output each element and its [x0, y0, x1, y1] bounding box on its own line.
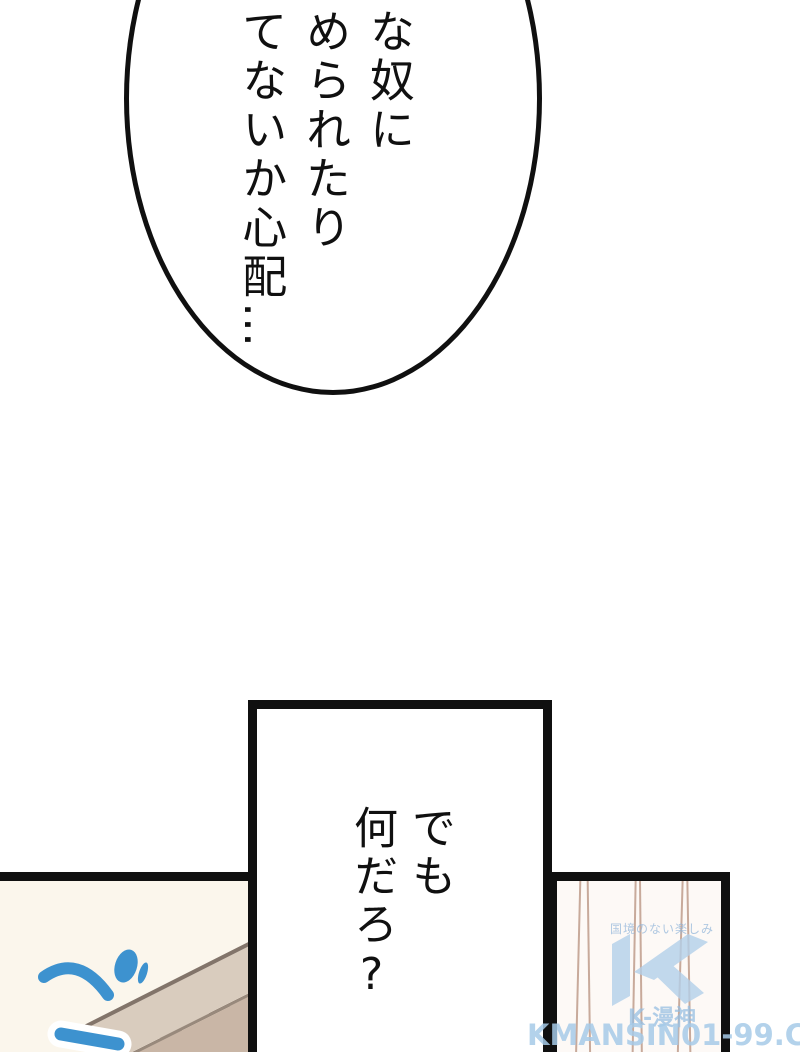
- wall-plank-line: [676, 875, 684, 1052]
- wall-plank-line: [575, 875, 582, 1052]
- manga-page: な奴に められたり てないか心配… でも 何だろ? 国境のない楽しみ K-漫神 …: [0, 0, 800, 1052]
- speech-bubble-rect: でも 何だろ?: [248, 700, 552, 1052]
- sfx-blue-go-mark: [0, 881, 267, 1052]
- panel-bottom-left: [0, 872, 280, 1052]
- speech-bubble-oval-text: な奴に められたり てないか心配…: [228, 8, 420, 408]
- wall-plank-line: [686, 875, 691, 1052]
- wall-plank-line: [639, 875, 643, 1052]
- wall-plank-line: [631, 875, 636, 1052]
- speech-bubble-rect-text: でも 何だろ?: [342, 805, 458, 1052]
- wall-plank-line: [587, 875, 592, 1052]
- panel-bottom-right: [548, 872, 730, 1052]
